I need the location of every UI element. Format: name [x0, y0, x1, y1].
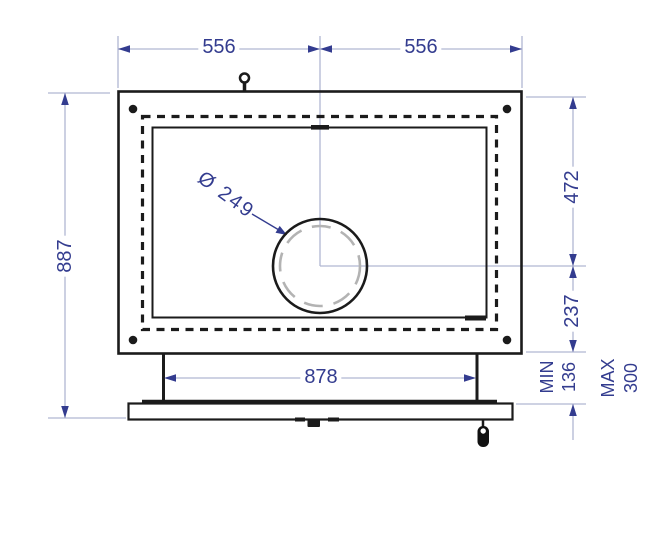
dim-upper-right-depth: 472: [562, 166, 582, 207]
drawing-linework: [0, 0, 669, 533]
arrow-right-bottom: [569, 340, 577, 352]
arrow-left-up: [61, 93, 69, 105]
screw-bottom-right: [503, 336, 512, 345]
dim-base-width: 878: [300, 367, 341, 387]
dim-lower-right-depth: 237: [562, 290, 582, 331]
screw-top-left: [129, 105, 138, 114]
arrow-right-mid-upper: [569, 254, 577, 266]
base-plate-tick-left: [295, 418, 305, 422]
arrow-top-center-left: [308, 45, 320, 53]
dimension-arrowheads: [61, 45, 577, 418]
arrow-top-right: [510, 45, 522, 53]
dim-overall-height: 887: [55, 235, 75, 276]
dim-max-label: MAX: [599, 358, 617, 397]
dim-max-value: 300: [622, 363, 640, 393]
arrow-base-left: [164, 374, 176, 382]
pull-knob-hole: [481, 428, 486, 433]
inner-plate-corner-tick: [465, 316, 486, 321]
technical-drawing-top-view: 556 556 887 472 237 878 MIN 136 MAX 300 …: [0, 0, 669, 533]
arrow-left-down: [61, 406, 69, 418]
arrow-minmax-up: [569, 404, 577, 416]
arrow-top-left: [118, 45, 130, 53]
base-plate-center-tab: [308, 420, 321, 428]
arrow-base-right: [464, 374, 476, 382]
screw-top-right: [503, 105, 512, 114]
arrow-right-top: [569, 97, 577, 109]
dim-min-label: MIN: [538, 361, 556, 394]
inner-plate-center-tick: [311, 125, 329, 130]
dim-top-left-width: 556: [198, 37, 239, 57]
base-plate-tick-right: [328, 418, 339, 422]
screw-bottom-left: [129, 336, 138, 345]
dim-top-right-width: 556: [400, 37, 441, 57]
dim-min-value: 136: [560, 362, 578, 392]
base-plate-outline: [129, 404, 513, 420]
top-knob-ring: [240, 74, 249, 83]
arrow-right-mid-lower: [569, 266, 577, 278]
arrow-top-center-right: [320, 45, 332, 53]
